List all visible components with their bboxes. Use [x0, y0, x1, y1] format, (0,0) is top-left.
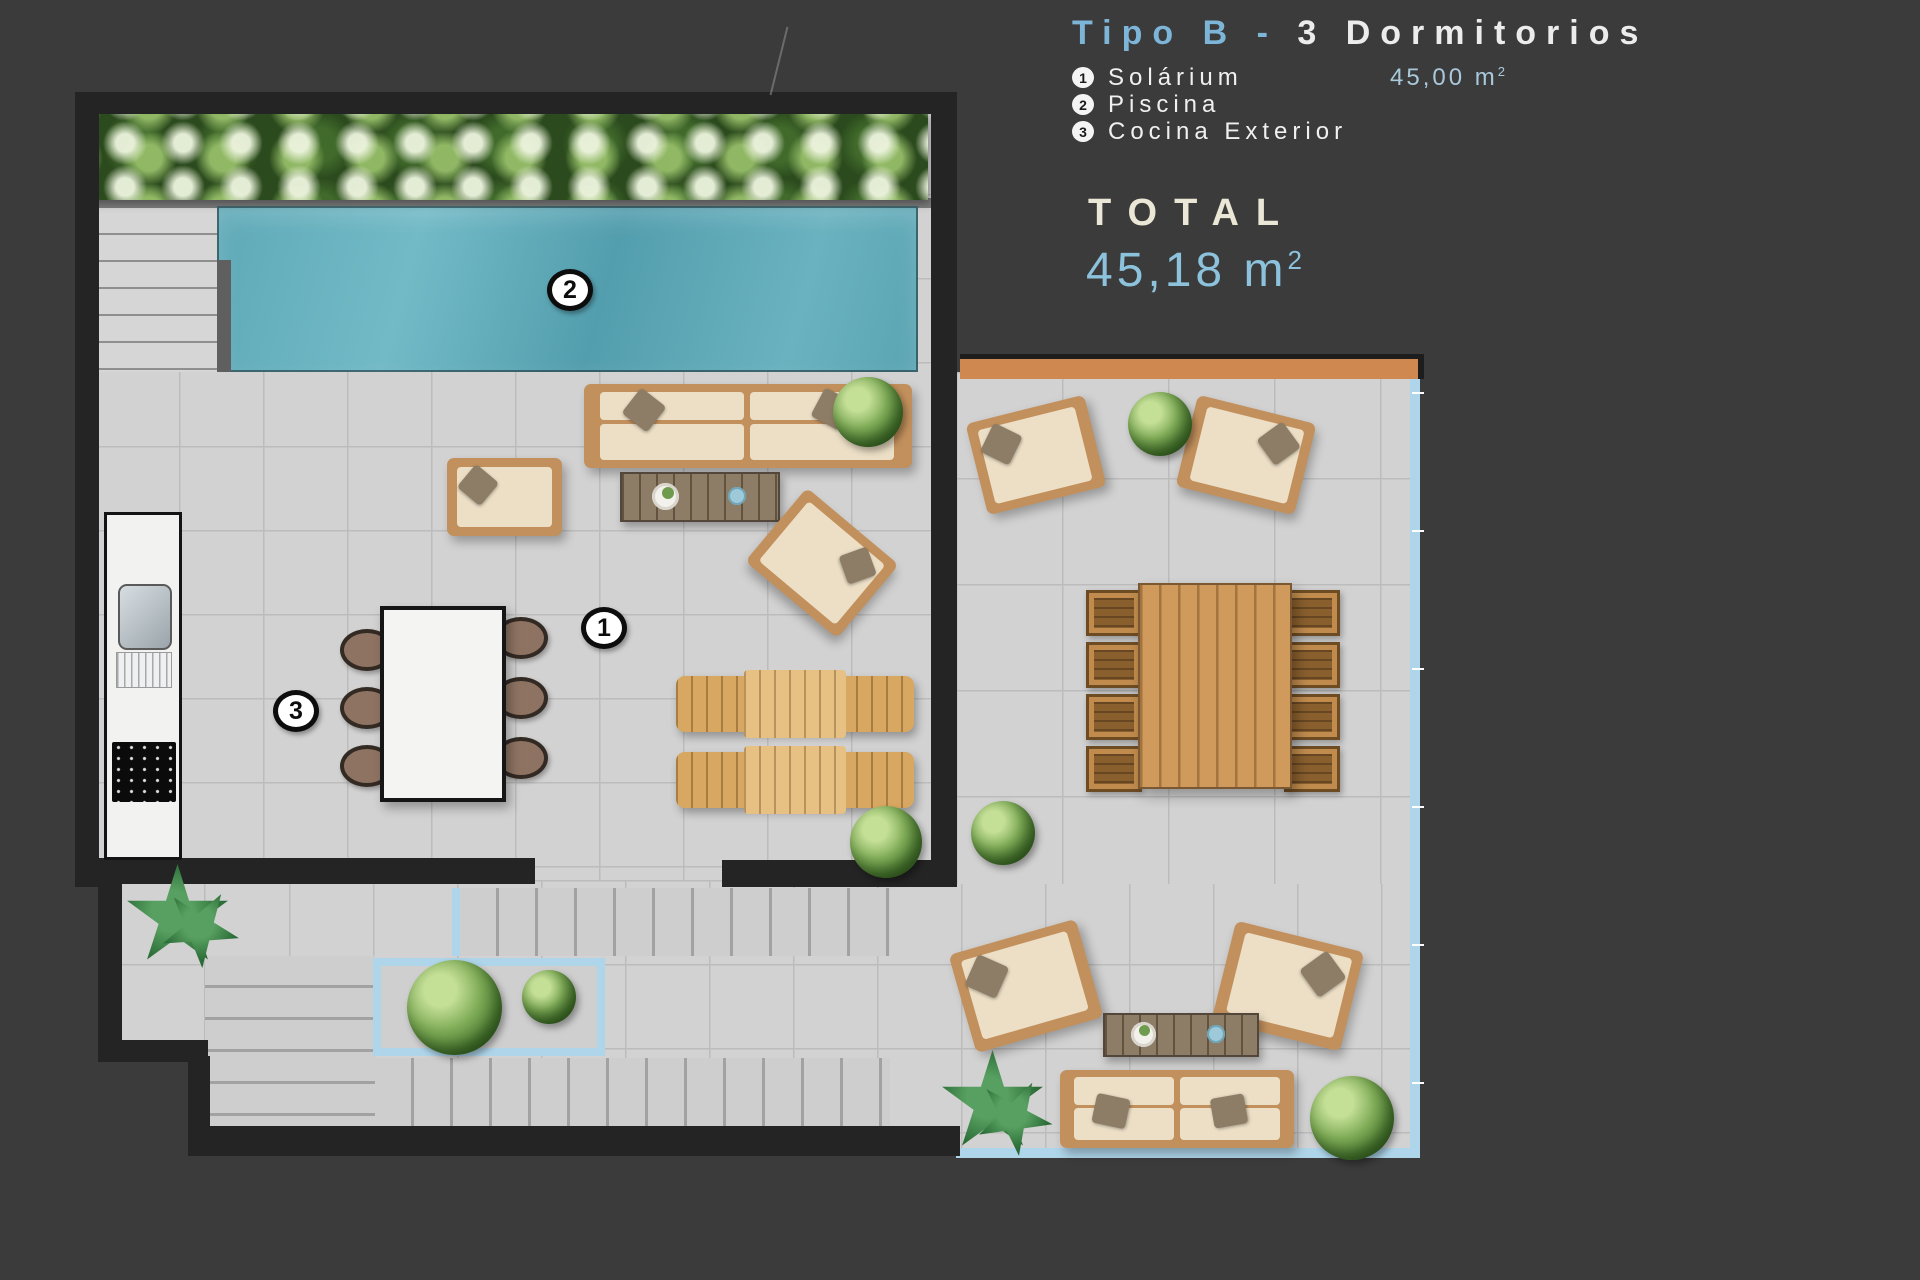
plan-title-type: Tipo B -	[1072, 14, 1278, 52]
bush-plant	[850, 806, 922, 878]
marker-solarium: 1	[581, 607, 627, 649]
marker-number: 3	[289, 697, 303, 726]
marker-piscina: 2	[547, 269, 593, 311]
legend-area: 45,00 m2	[1390, 64, 1508, 92]
coffee-table	[620, 472, 780, 522]
walkway-wall-left	[98, 882, 122, 1044]
stairs-lower-run	[375, 1058, 890, 1126]
legend-row-solarium: 1 Solárium 45,00 m2	[1072, 64, 1508, 91]
sketch-artifact-line	[770, 27, 789, 95]
measure-tick	[1412, 806, 1424, 808]
stairs-cyan-edge	[452, 888, 460, 956]
terrace-coffee-table	[1103, 1013, 1259, 1057]
plant-sprig	[662, 487, 674, 499]
armchair	[447, 458, 562, 536]
legend-bullet: 3	[1072, 121, 1094, 142]
floor-plan-canvas: 1 2 3 Tipo B - 3 Dormitorios 1 Solárium …	[0, 0, 1920, 1280]
kitchen-sink	[118, 584, 172, 650]
terrace-dining-chair	[1284, 746, 1340, 792]
throw-pillow	[1210, 1093, 1249, 1128]
total-label: TOTAL	[1088, 192, 1296, 235]
terrace-dining-chair	[1086, 642, 1142, 688]
measure-tick	[1412, 530, 1424, 532]
sofa-seat-cushion	[600, 424, 744, 460]
plan-title-rest: 3 Dormitorios	[1297, 14, 1648, 52]
legend-bullet: 2	[1072, 94, 1094, 115]
measure-tick	[1412, 944, 1424, 946]
terrace-dining-chair	[1086, 694, 1142, 740]
outer-wall-right	[931, 92, 957, 887]
legend-row-cocina: 3 Cocina Exterior	[1072, 118, 1508, 145]
outer-wall-top	[75, 92, 957, 114]
cooktop	[112, 742, 176, 802]
bowl	[1207, 1025, 1225, 1043]
sink-drainer	[116, 652, 172, 688]
wall-bottom-right-segment	[722, 860, 957, 887]
sun-lounger-cushion	[744, 670, 846, 738]
terrace-dining-chair	[1284, 590, 1340, 636]
stairs-upper-run	[460, 888, 890, 956]
terrace-right-boundary	[1410, 374, 1420, 1156]
bush-plant	[833, 377, 903, 447]
legend-label: Solárium	[1108, 64, 1390, 92]
sofa-back-cushion	[600, 392, 744, 420]
terrace-dining-chair	[1284, 694, 1340, 740]
terrace-dining-chair	[1086, 590, 1142, 636]
legend-label: Cocina Exterior	[1108, 118, 1390, 146]
legend-row-piscina: 2 Piscina	[1072, 91, 1508, 118]
stairs-left-run	[205, 956, 375, 1152]
sun-lounger	[676, 676, 914, 732]
wall-bottom-left-segment	[75, 858, 535, 884]
sun-lounger-cushion	[744, 746, 846, 814]
hedge-planting	[90, 112, 928, 200]
bowl	[728, 487, 746, 505]
outer-wall-left	[75, 92, 99, 887]
pergola-beam	[960, 354, 1424, 379]
dining-table	[380, 606, 506, 802]
bush-plant	[971, 801, 1035, 865]
measure-tick	[1412, 1082, 1424, 1084]
sun-lounger	[676, 752, 914, 808]
total-area-value: 45,18 m2	[1086, 243, 1306, 298]
terrace-dining-table	[1138, 583, 1292, 789]
planter-bush-large	[407, 960, 502, 1055]
marker-cocina-exterior: 3	[273, 690, 319, 732]
legend-bullet: 1	[1072, 67, 1094, 88]
plant-sprig	[1139, 1025, 1150, 1036]
planter-bush-small	[522, 970, 576, 1024]
legend: 1 Solárium 45,00 m2 2 Piscina 3 Cocina E…	[1072, 64, 1508, 145]
pool-side-wall	[217, 260, 231, 372]
measure-tick	[1412, 392, 1424, 394]
stairs-top-left	[99, 208, 217, 372]
measure-tick	[1412, 668, 1424, 670]
terrace-sofa	[1060, 1070, 1294, 1148]
bush-plant	[1128, 392, 1192, 456]
plan-title: Tipo B - 3 Dormitorios	[1072, 14, 1648, 53]
bush-plant	[1310, 1076, 1394, 1160]
terrace-dining-chair	[1086, 746, 1142, 792]
terrace-dining-chair	[1284, 642, 1340, 688]
legend-label: Piscina	[1108, 91, 1390, 119]
stair-wall-bottom	[188, 1126, 960, 1156]
marker-number: 1	[597, 614, 611, 643]
marker-number: 2	[563, 276, 577, 305]
